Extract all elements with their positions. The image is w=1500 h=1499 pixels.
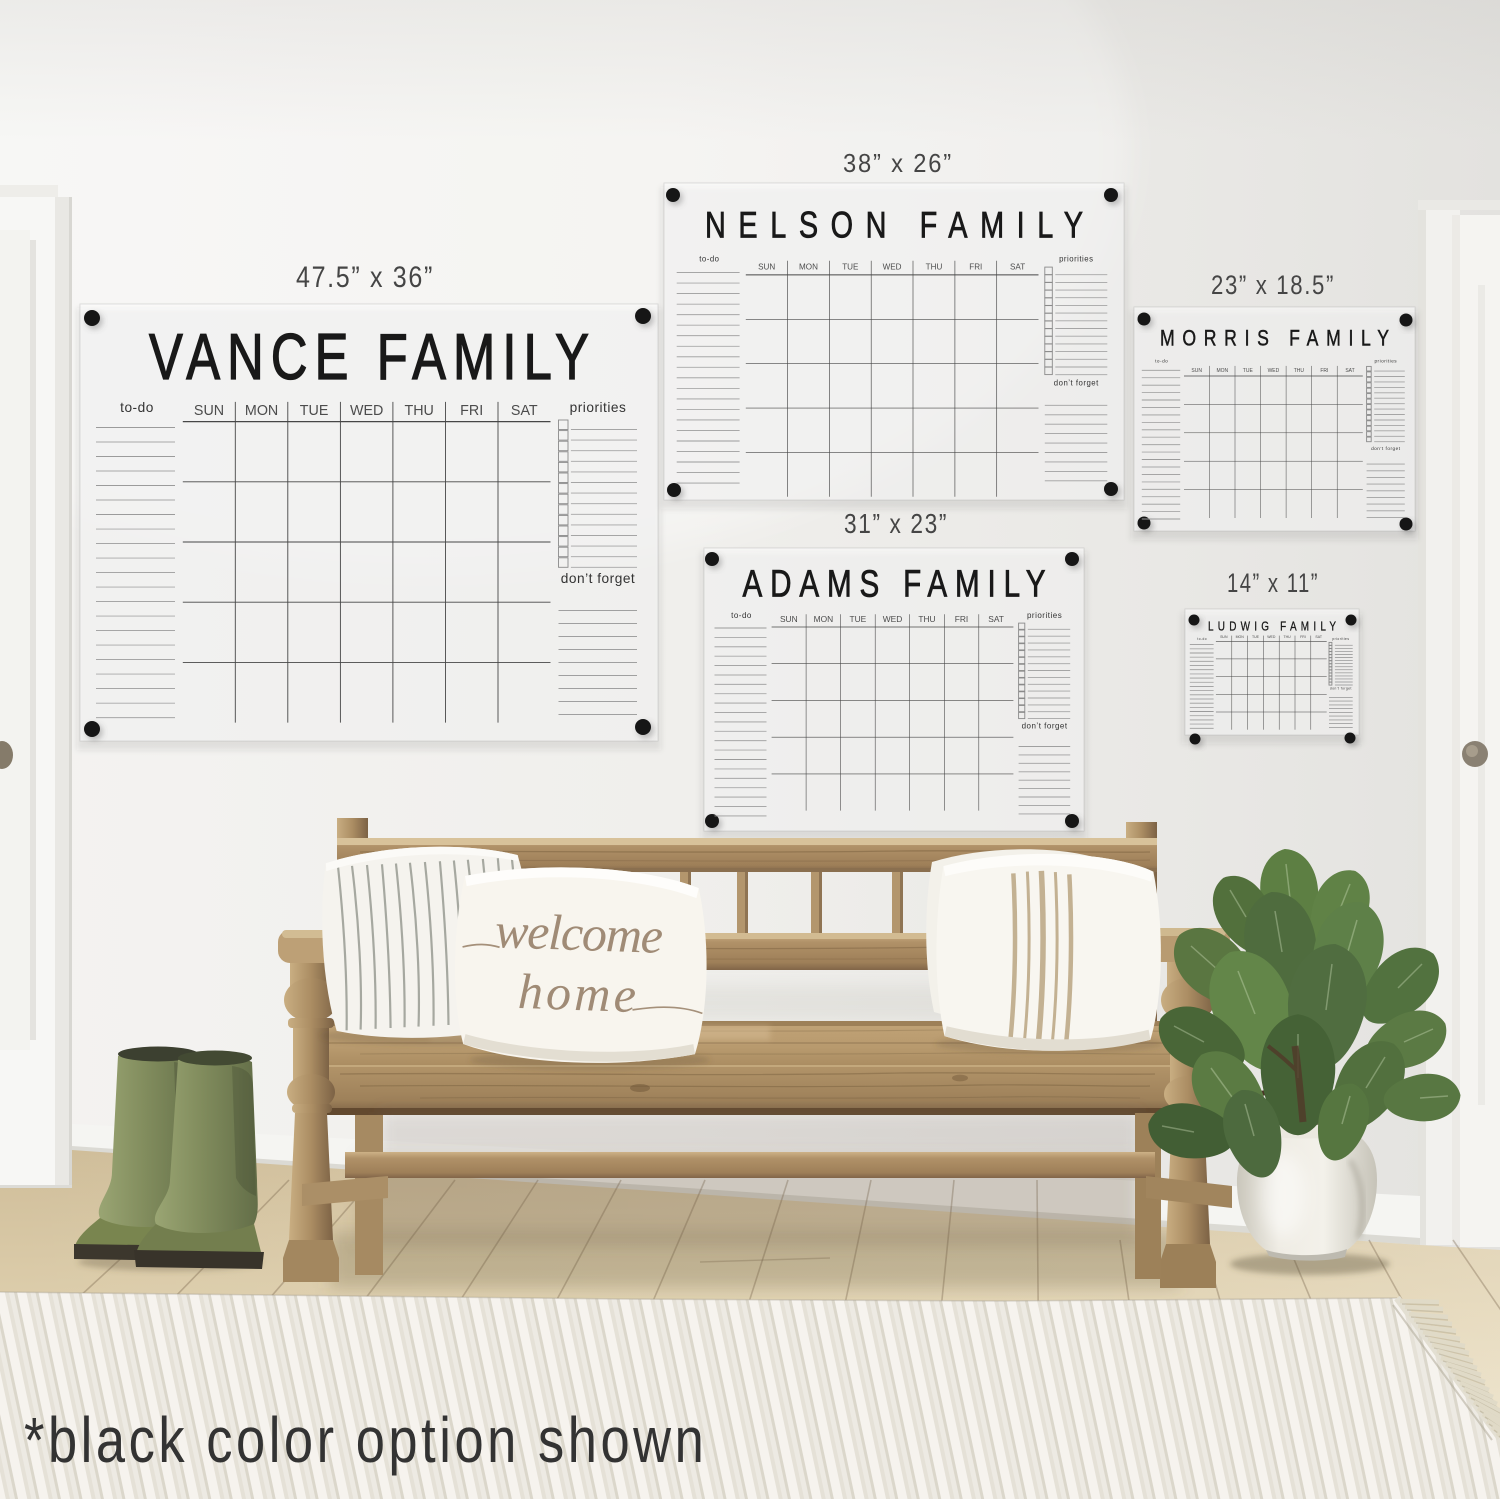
svg-text:38” x 26”: 38” x 26” <box>843 148 953 178</box>
svg-text:MON: MON <box>1236 635 1245 639</box>
svg-text:FRI: FRI <box>1300 635 1306 639</box>
svg-text:priorities: priorities <box>570 400 627 415</box>
svg-text:FRI: FRI <box>1320 368 1328 374</box>
svg-text:to-do: to-do <box>1197 637 1207 641</box>
svg-text:don’t forget: don’t forget <box>1330 686 1352 690</box>
svg-text:FRI: FRI <box>460 403 483 419</box>
svg-text:VANCE FAMILY: VANCE FAMILY <box>149 321 589 393</box>
svg-text:priorities: priorities <box>1059 254 1093 263</box>
svg-text:to-do: to-do <box>120 400 154 415</box>
svg-text:TUE: TUE <box>1252 635 1260 639</box>
svg-text:TUE: TUE <box>842 263 859 272</box>
svg-text:THU: THU <box>1283 635 1291 639</box>
svg-text:THU: THU <box>405 403 434 419</box>
svg-text:SUN: SUN <box>194 403 224 419</box>
svg-text:SUN: SUN <box>758 263 775 272</box>
svg-text:don’t forget: don’t forget <box>1054 378 1099 387</box>
svg-text:don’t forget: don’t forget <box>561 571 635 586</box>
svg-text:priorities: priorities <box>1027 611 1062 620</box>
svg-text:MON: MON <box>814 614 834 624</box>
svg-text:THU: THU <box>918 614 935 624</box>
svg-text:to-do: to-do <box>1155 358 1168 363</box>
svg-text:THU: THU <box>1294 368 1305 374</box>
svg-text:priorities: priorities <box>1332 637 1349 641</box>
svg-text:TUE: TUE <box>850 614 867 624</box>
svg-text:home: home <box>517 963 637 1023</box>
svg-text:welcome: welcome <box>494 902 664 964</box>
svg-text:THU: THU <box>926 263 943 272</box>
svg-text:TUE: TUE <box>1243 368 1254 374</box>
svg-text:14” x 11”: 14” x 11” <box>1227 568 1319 598</box>
svg-text:MON: MON <box>1216 368 1228 374</box>
svg-text:SAT: SAT <box>1010 263 1025 272</box>
svg-text:23” x 18.5”: 23” x 18.5” <box>1211 270 1335 300</box>
svg-text:MON: MON <box>245 403 278 419</box>
svg-text:WED: WED <box>1267 635 1276 639</box>
svg-text:WED: WED <box>350 403 383 419</box>
svg-text:FRI: FRI <box>969 263 982 272</box>
svg-text:WED: WED <box>883 614 903 624</box>
svg-text:FRI: FRI <box>955 614 969 624</box>
svg-text:SUN: SUN <box>1191 368 1202 374</box>
svg-text:SAT: SAT <box>1345 368 1354 374</box>
svg-text:WED: WED <box>883 263 902 272</box>
svg-text:TUE: TUE <box>300 403 329 419</box>
svg-text:to-do: to-do <box>731 611 752 620</box>
svg-text:SUN: SUN <box>1220 635 1228 639</box>
svg-text:SAT: SAT <box>988 614 1004 624</box>
svg-text:don’t forget: don’t forget <box>1371 446 1401 451</box>
svg-text:SUN: SUN <box>780 614 798 624</box>
svg-text:priorities: priorities <box>1374 358 1397 363</box>
svg-text:31” x 23”: 31” x 23” <box>844 508 948 539</box>
svg-text:SAT: SAT <box>511 403 538 419</box>
svg-text:to-do: to-do <box>699 254 719 263</box>
svg-text:SAT: SAT <box>1315 635 1322 639</box>
svg-text:MON: MON <box>799 263 818 272</box>
svg-text:47.5” x 36”: 47.5” x 36” <box>296 261 434 294</box>
svg-text:WED: WED <box>1268 368 1280 374</box>
svg-text:don’t forget: don’t forget <box>1022 722 1068 731</box>
